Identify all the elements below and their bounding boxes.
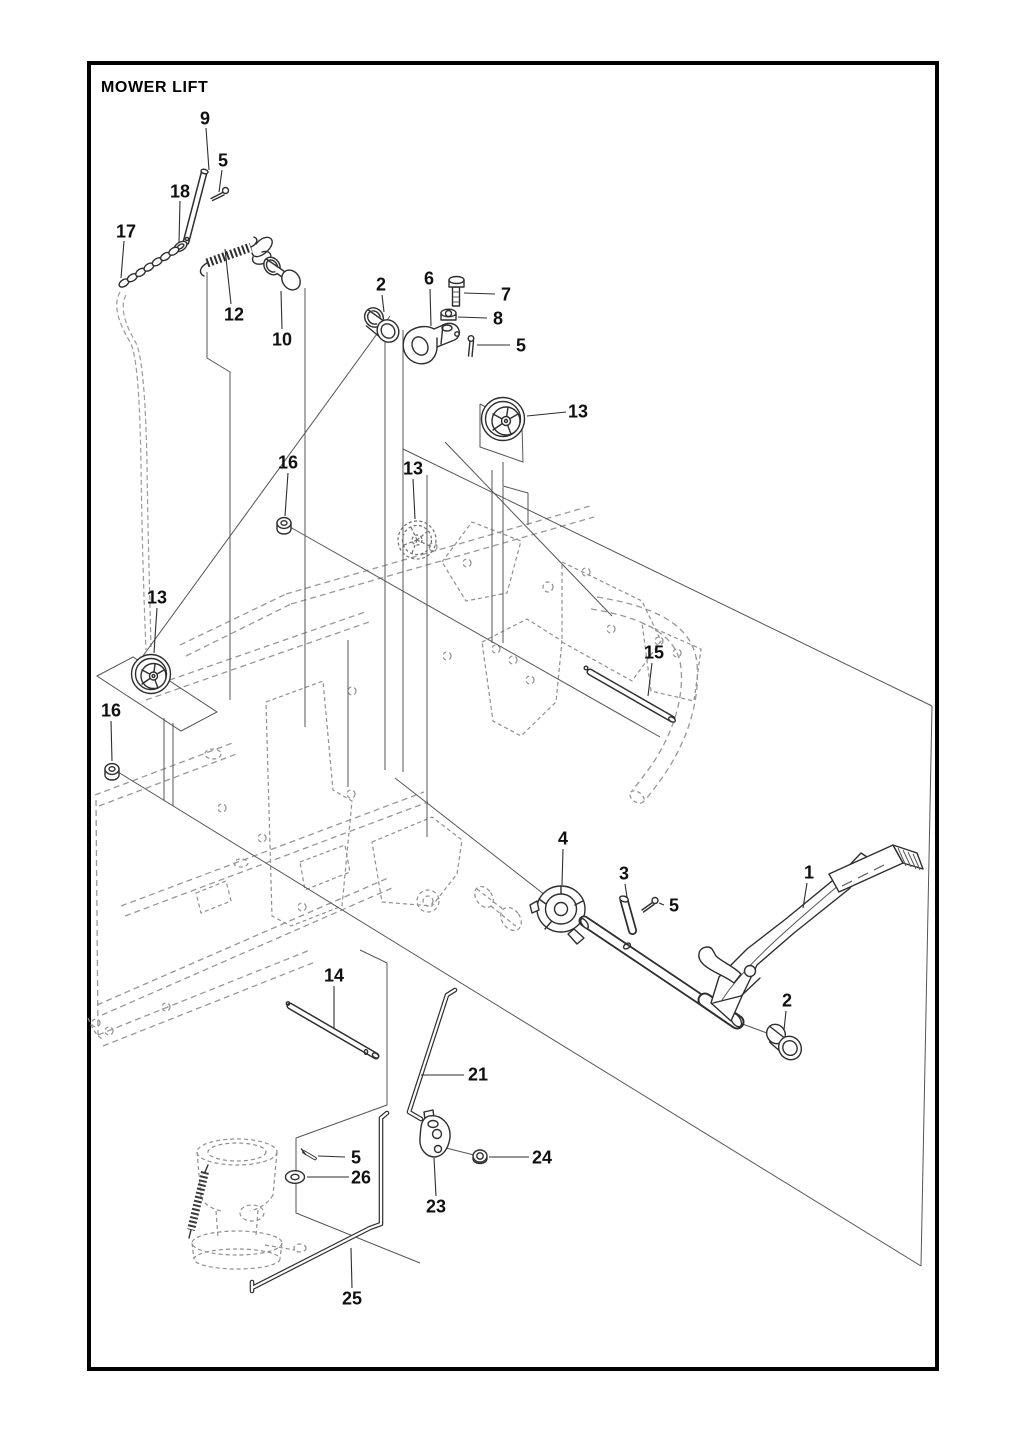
callout-label-13: 13 xyxy=(147,588,167,608)
part-8-nut xyxy=(441,309,456,320)
callout-label-1: 1 xyxy=(804,863,814,883)
part-1-lift-lever xyxy=(579,845,923,1029)
leader-line-5 xyxy=(219,170,222,192)
part-24-nut xyxy=(473,1150,487,1164)
callout-label-10: 10 xyxy=(272,330,292,350)
leader-line-4 xyxy=(562,849,563,885)
leader-line-3 xyxy=(625,884,627,897)
part-23-bracket xyxy=(420,1110,450,1157)
part-17-chain xyxy=(118,245,180,288)
part-3-pin xyxy=(619,895,633,930)
part-16-nut-left xyxy=(105,764,119,780)
leader-line-16 xyxy=(285,473,288,516)
page-title: MOWER LIFT xyxy=(101,79,208,96)
callout-label-26: 26 xyxy=(351,1168,371,1188)
callout-label-7: 7 xyxy=(501,285,511,305)
part-9-handle-rod xyxy=(185,168,208,242)
chassis-ghost-drawing xyxy=(88,506,701,1046)
part-16-nut-upper xyxy=(277,518,291,534)
callout-label-21: 21 xyxy=(468,1065,488,1085)
callout-label-6: 6 xyxy=(424,269,434,289)
callout-label-2: 2 xyxy=(782,991,792,1011)
leader-line-13 xyxy=(527,412,566,416)
callout-label-25: 25 xyxy=(342,1289,362,1309)
leader-line-16 xyxy=(111,721,112,761)
parts-diagram-page: MOWER LIFT xyxy=(0,0,1024,1434)
part-5-cotter-pin-right xyxy=(642,898,658,913)
leader-line-6 xyxy=(430,289,431,326)
leader-line-8 xyxy=(458,317,487,318)
callout-label-15: 15 xyxy=(644,643,664,663)
callout-label-13: 13 xyxy=(568,402,588,422)
part-21-link-rod xyxy=(409,990,455,1119)
callout-label-16: 16 xyxy=(101,701,121,721)
leader-line-15 xyxy=(648,663,652,696)
part-26-washer xyxy=(286,1171,305,1184)
leader-line-25 xyxy=(351,1248,352,1288)
part-2-bushing-left xyxy=(361,304,403,346)
leader-line-2 xyxy=(382,295,384,312)
leader-line-5 xyxy=(659,903,664,905)
leader-line-2 xyxy=(784,1011,786,1030)
part-14-rod xyxy=(286,1002,379,1059)
leader-line-13 xyxy=(154,608,157,653)
callout-label-5: 5 xyxy=(351,1148,361,1168)
parts-layer xyxy=(105,168,923,1291)
callout-label-8: 8 xyxy=(493,309,503,329)
part-7-bolt xyxy=(449,277,464,307)
part-10-bushing xyxy=(261,254,304,293)
callout-label-9: 9 xyxy=(200,109,210,129)
leader-line-5 xyxy=(318,1156,345,1157)
callout-label-5: 5 xyxy=(669,896,679,916)
leader-line-9 xyxy=(206,128,209,170)
leader-line-13 xyxy=(413,479,415,519)
callout-label-5: 5 xyxy=(516,336,526,356)
leader-line-23 xyxy=(434,1158,436,1196)
part-13-pulley-middle-ghost xyxy=(398,521,436,559)
callout-label-24: 24 xyxy=(532,1148,552,1168)
leader-line-18 xyxy=(179,201,180,242)
part-13-pulley-top xyxy=(482,398,525,441)
callout-label-17: 17 xyxy=(116,222,136,242)
part-15-shaft xyxy=(584,666,676,723)
callout-label-5: 5 xyxy=(218,151,228,171)
diagram-canvas: MOWER LIFT xyxy=(0,0,1024,1434)
callout-label-2: 2 xyxy=(376,275,386,295)
callout-label-3: 3 xyxy=(619,864,629,884)
leader-line-7 xyxy=(464,293,495,294)
pedal-tower-ghost xyxy=(192,1139,306,1269)
callout-label-23: 23 xyxy=(426,1197,446,1217)
callout-label-16: 16 xyxy=(278,453,298,473)
leader-line-10 xyxy=(281,291,282,329)
leader-line-17 xyxy=(121,241,124,278)
part-6-clamp-bracket xyxy=(403,323,459,363)
part-12-spring xyxy=(200,237,272,276)
callout-label-13: 13 xyxy=(403,459,423,479)
callout-label-14: 14 xyxy=(324,966,344,986)
part-5-screw-bottom xyxy=(302,1149,316,1159)
part-5-cotter-pin-middle xyxy=(468,336,474,357)
pedal-tower-spring xyxy=(189,1165,208,1238)
callout-label-4: 4 xyxy=(558,829,568,849)
callout-label-12: 12 xyxy=(224,305,244,325)
callout-label-18: 18 xyxy=(170,182,190,202)
part-13-pulley-left xyxy=(132,655,171,694)
part-4-cam-disc xyxy=(530,886,585,944)
lift-rope-dashed xyxy=(117,292,151,650)
